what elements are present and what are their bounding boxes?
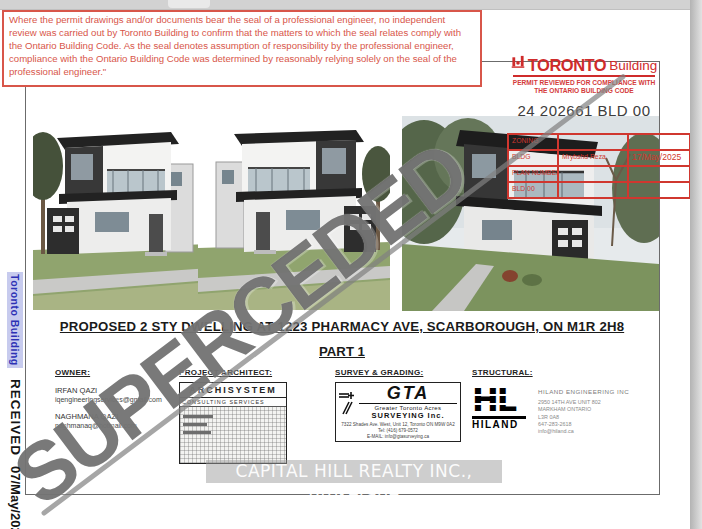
stamp-row-name: Mrybshd Reza [558, 150, 628, 166]
hiland-firm-name: HILAND ENGINEERING INC [538, 388, 629, 395]
toronto-building-permit-stamp: TORONTO Building PERMIT REVIEWED FOR COM… [505, 54, 663, 119]
hiland-address-line: L3R 0A8 [538, 414, 629, 421]
drawing-title: PROPOSED 2 STY DWELLING AT 1223 PHARMACY… [26, 319, 658, 334]
gta-surveying-logo-box: GTA Greater Toronto Acres SURVEYING Inc.… [335, 382, 461, 442]
toronto-logo-text: TORONTO [528, 57, 606, 73]
permit-reviewed-line2: THE ONTARIO BUILDING CODE [505, 87, 663, 95]
stamp-row-label: PLAN NUMBERS [508, 166, 558, 182]
stamp-row-date: 17/May/2025 [628, 150, 690, 166]
gta-survey-logo-marks-icon [339, 386, 355, 420]
realty-watermark: CAPITAL HILL REALTY INC., Brokerage [206, 460, 502, 483]
hiland-email: info@hiland.ca [538, 428, 629, 435]
page-right-edge [690, 0, 702, 529]
stamp-row-date [628, 182, 690, 198]
gta-firm-line2: SURVEYING Inc. [359, 411, 457, 420]
stamp-row-date [628, 134, 690, 150]
page-top-notch [168, 0, 210, 8]
toronto-city-hall-icon [511, 54, 525, 73]
hiland-phone: 647-283-2618 [538, 421, 629, 428]
toronto-building-vertical-logo: Toronto Building [7, 272, 23, 368]
structural-section: STRUCTURAL: HL HILAND HILAND ENGINEERING… [472, 368, 657, 435]
page-top-edge [0, 0, 702, 10]
received-label: RECEIVED [8, 379, 23, 456]
received-date: 07/May/2025 [8, 466, 23, 529]
gta-email: E-MAIL: info@gtasurveying.ca [339, 434, 457, 440]
stamp-row-date [628, 166, 690, 182]
hiland-contact-block: HILAND ENGINEERING INC 2950 14TH AVE UNI… [538, 386, 629, 435]
structural-label: STRUCTURAL: [472, 368, 657, 377]
building-logo-text: Building [609, 58, 657, 73]
stamp-row-name [558, 166, 628, 182]
logo-rule [513, 75, 655, 77]
stamp-row-name [558, 134, 628, 150]
hiland-address-line: MARKHAM ONTARIO [538, 406, 629, 413]
hiland-address-line: 2950 14TH AVE UNIT 802 [538, 399, 629, 406]
rendering-dwelling-view-1 [33, 92, 211, 310]
hiland-logo-letters: HL [472, 386, 526, 414]
gta-address: 7322 Shades Ave. West, Unit 12, Toronto … [339, 422, 457, 428]
stamp-row-label: BLD 00 [508, 182, 558, 198]
survey-section: SURVEY & GRADING: GTA Greater Toronto Ac… [335, 368, 467, 442]
permit-reviewed-line1: PERMIT REVIEWED FOR COMPLIANCE WITH [505, 79, 663, 87]
hiland-logo: HL HILAND [472, 386, 526, 435]
document-viewport: Toronto Building RECEIVED 07/May/2025 Wh… [0, 0, 702, 529]
survey-label: SURVEY & GRADING: [335, 368, 467, 377]
engineer-seal-disclaimer: Where the permit drawings and/or documen… [2, 10, 482, 87]
stamp-row-name [558, 182, 628, 198]
gta-firm-line1: Greater Toronto Acres [359, 403, 457, 411]
gta-logo-text: GTA [359, 385, 457, 402]
received-stamp-vertical: Toronto Building RECEIVED 07/May/2025 [2, 272, 24, 529]
